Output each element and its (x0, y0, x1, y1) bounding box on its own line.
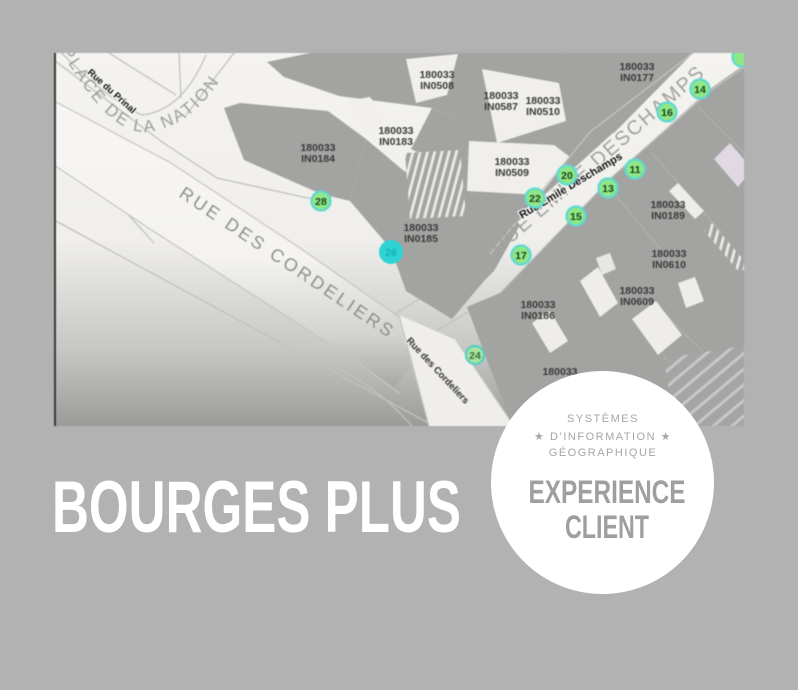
svg-text:★ D’INFORMATION ★: ★ D’INFORMATION ★ (534, 431, 672, 443)
svg-text:SYSTÈMES: SYSTÈMES (567, 412, 639, 425)
svg-text:GÉOGRAPHIQUE: GÉOGRAPHIQUE (549, 446, 657, 459)
svg-text:EXPERIENCE: EXPERIENCE (529, 474, 686, 510)
svg-text:BOURGES PLUS: BOURGES PLUS (52, 465, 461, 548)
svg-text:CLIENT: CLIENT (565, 509, 649, 545)
